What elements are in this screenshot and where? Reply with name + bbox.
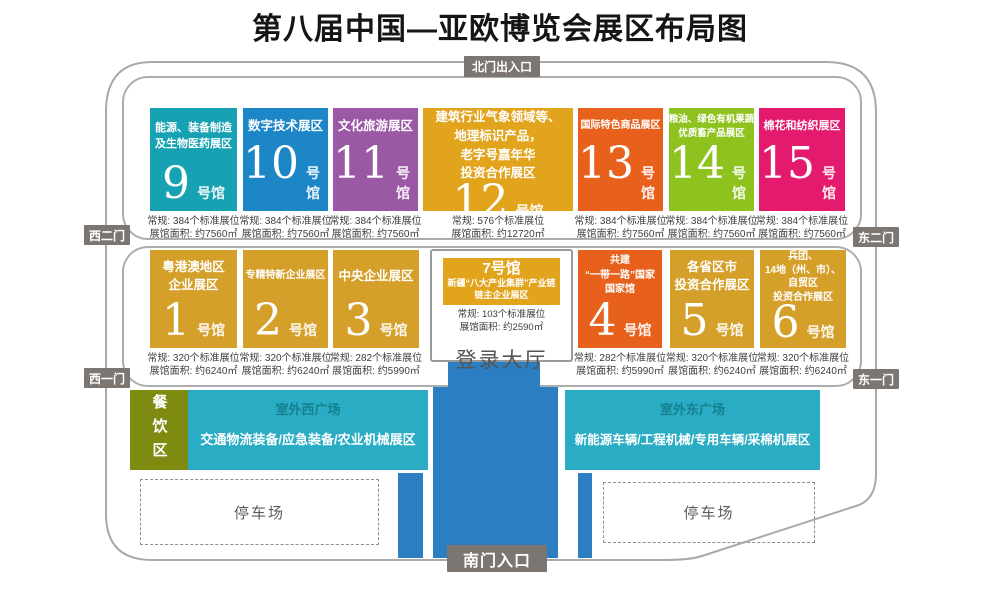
east-parking-lot: 停车场 [603,482,815,543]
east-gate-2: 东二门 [853,227,899,247]
west-walkway [398,473,423,558]
hall-3-stats: 常规: 282个标准展位 展馆面积: 约5990㎡ [319,352,433,378]
hall-9-box: 能源、装备制造 及生物医药展区 9 号馆 [150,108,237,211]
hall-4: 共建 “一带一路”国家 国家馆 4 号馆 常规: 282个标准展位 展馆面积: … [578,250,662,348]
hall-12: 建筑行业气象领域等、 地理标识产品， 老字号嘉年华 投资合作展区 12 号馆 常… [423,108,573,211]
west-outdoor-plaza: 室外西广场 交通物流装备/应急装备/农业机械展区 [188,390,428,470]
hall-15-number: 15 号馆 [759,145,845,211]
hall-12-box: 建筑行业气象领域等、 地理标识产品， 老字号嘉年华 投资合作展区 12 号馆 [423,108,573,211]
hall-13: 国际特色商品展区 13 号馆 常规: 384个标准展位 展馆面积: 约7560㎡ [578,108,663,211]
south-entrance-road [433,387,558,558]
hall-1: 粤港澳地区 企业展区 1 号馆 常规: 320个标准展位 展馆面积: 约6240… [150,250,237,348]
hall-10: 数字技术展区 10 号馆 常规: 384个标准展位 展馆面积: 约7560㎡ [243,108,328,211]
hall-6: 兵团、 14地（州、市）、 自贸区 投资合作展区 6 号馆 常规: 320个标准… [760,250,846,348]
hall-7-booths: 常规: 103个标准展位 [432,309,571,322]
hall-2-number: 2 号馆 [243,302,328,348]
hall-6-booths: 常规: 320个标准展位 [746,352,860,365]
hall-15-stats: 常规: 384个标准展位 展馆面积: 约7560㎡ [745,215,859,241]
hall-3-area: 展馆面积: 约5990㎡ [319,365,433,378]
east-parking-label: 停车场 [683,502,734,523]
hall-12-booths: 常规: 576个标准展位 [409,215,587,228]
hall-7-header: 7号馆 新疆“八大产业集群”产业链 链主企业展区 [443,258,560,305]
west-plaza-title: 室外西广场 [188,399,428,418]
dining-area-label: 餐饮区 [149,394,170,466]
hall-12-name: 建筑行业气象领域等、 地理标识产品， 老字号嘉年华 投资合作展区 [423,108,573,183]
hall-11-box: 文化旅游展区 11 号馆 [333,108,418,211]
hall-13-number: 13 号馆 [578,145,663,211]
hall-5-box: 各省区市 投资合作展区 5 号馆 [670,250,754,348]
hall-7-stats: 常规: 103个标准展位 展馆面积: 约2590㎡ [432,309,571,335]
hall-7-name: 新疆“八大产业集群”产业链 链主企业展区 [444,278,559,301]
east-walkway [578,473,592,558]
hall-11: 文化旅游展区 11 号馆 常规: 384个标准展位 展馆面积: 约7560㎡ [333,108,418,211]
hall-1-box: 粤港澳地区 企业展区 1 号馆 [150,250,237,348]
west-parking-lot: 停车场 [140,479,379,545]
hall-14-number: 14 号馆 [669,145,754,211]
hall-3-number: 3 号馆 [333,302,419,348]
hall-6-name: 兵团、 14地（州、市）、 自贸区 投资合作展区 [760,250,846,304]
hall-10-box: 数字技术展区 10 号馆 [243,108,328,211]
west-gate-2: 西二门 [84,225,130,245]
hall-6-number: 6 号馆 [760,304,846,350]
hall-11-number: 11 号馆 [333,145,418,211]
hall-9-name: 能源、装备制造 及生物医药展区 [150,108,237,165]
hall-10-number: 10 号馆 [243,145,328,211]
hall-4-number: 4 号馆 [578,302,662,348]
hall-2-box: 专精特新企业展区 2 号馆 [243,250,328,348]
registration-lobby-label: 登录大厅 [432,344,571,374]
hall-15-box: 棉花和纺织展区 15 号馆 [759,108,845,211]
hall-12-stats: 常规: 576个标准展位 展馆面积: 约12720㎡ [409,215,587,241]
hall-15-area: 展馆面积: 约7560㎡ [745,228,859,241]
hall-3: 中央企业展区 3 号馆 常规: 282个标准展位 展馆面积: 约5990㎡ [333,250,419,348]
east-gate-1: 东一门 [853,369,899,389]
hall-7-number: 7号馆 [444,260,559,278]
hall-6-stats: 常规: 320个标准展位 展馆面积: 约6240㎡ [746,352,860,378]
hall-6-area: 展馆面积: 约6240㎡ [746,365,860,378]
hall-9: 能源、装备制造 及生物医药展区 9 号馆 常规: 384个标准展位 展馆面积: … [150,108,237,211]
west-plaza-label: 交通物流装备/应急装备/农业机械展区 [188,429,428,448]
hall-3-box: 中央企业展区 3 号馆 [333,250,419,348]
west-gate-1: 西一门 [84,368,130,388]
hall-4-box: 共建 “一带一路”国家 国家馆 4 号馆 [578,250,662,348]
north-gate: 北门出入口 [464,56,540,77]
east-plaza-title: 室外东广场 [565,399,820,418]
hall-14-box: 粮油、绿色有机果蔬 优质畜产品展区 14 号馆 [669,108,754,211]
hall-13-box: 国际特色商品展区 13 号馆 [578,108,663,211]
hall-15: 棉花和纺织展区 15 号馆 常规: 384个标准展位 展馆面积: 约7560㎡ [759,108,845,211]
hall-5: 各省区市 投资合作展区 5 号馆 常规: 320个标准展位 展馆面积: 约624… [670,250,754,348]
hall-7-lobby-box: 7号馆 新疆“八大产业集群”产业链 链主企业展区 常规: 103个标准展位 展馆… [430,249,573,362]
dining-area: 餐饮区 [130,390,188,470]
expo-layout-map: 第八届中国—亚欧博览会展区布局图 能源、装备制造 及生物医药展区 9 号馆 常规… [0,0,1000,597]
hall-1-number: 1 号馆 [150,302,237,348]
hall-6-box: 兵团、 14地（州、市）、 自贸区 投资合作展区 6 号馆 [760,250,846,348]
east-plaza-label: 新能源车辆/工程机械/专用车辆/采棉机展区 [565,429,820,448]
east-outdoor-plaza: 室外东广场 新能源车辆/工程机械/专用车辆/采棉机展区 [565,390,820,470]
hall-3-booths: 常规: 282个标准展位 [319,352,433,365]
hall-7-area: 展馆面积: 约2590㎡ [432,322,571,335]
south-gate: 南门入口 [447,545,547,572]
hall-15-booths: 常规: 384个标准展位 [745,215,859,228]
hall-14: 粮油、绿色有机果蔬 优质畜产品展区 14 号馆 常规: 384个标准展位 展馆面… [669,108,754,211]
hall-2: 专精特新企业展区 2 号馆 常规: 320个标准展位 展馆面积: 约6240㎡ [243,250,328,348]
west-parking-label: 停车场 [234,502,285,523]
hall-9-number: 9 号馆 [150,165,237,211]
hall-12-area: 展馆面积: 约12720㎡ [409,228,587,241]
hall-5-number: 5 号馆 [670,302,754,348]
